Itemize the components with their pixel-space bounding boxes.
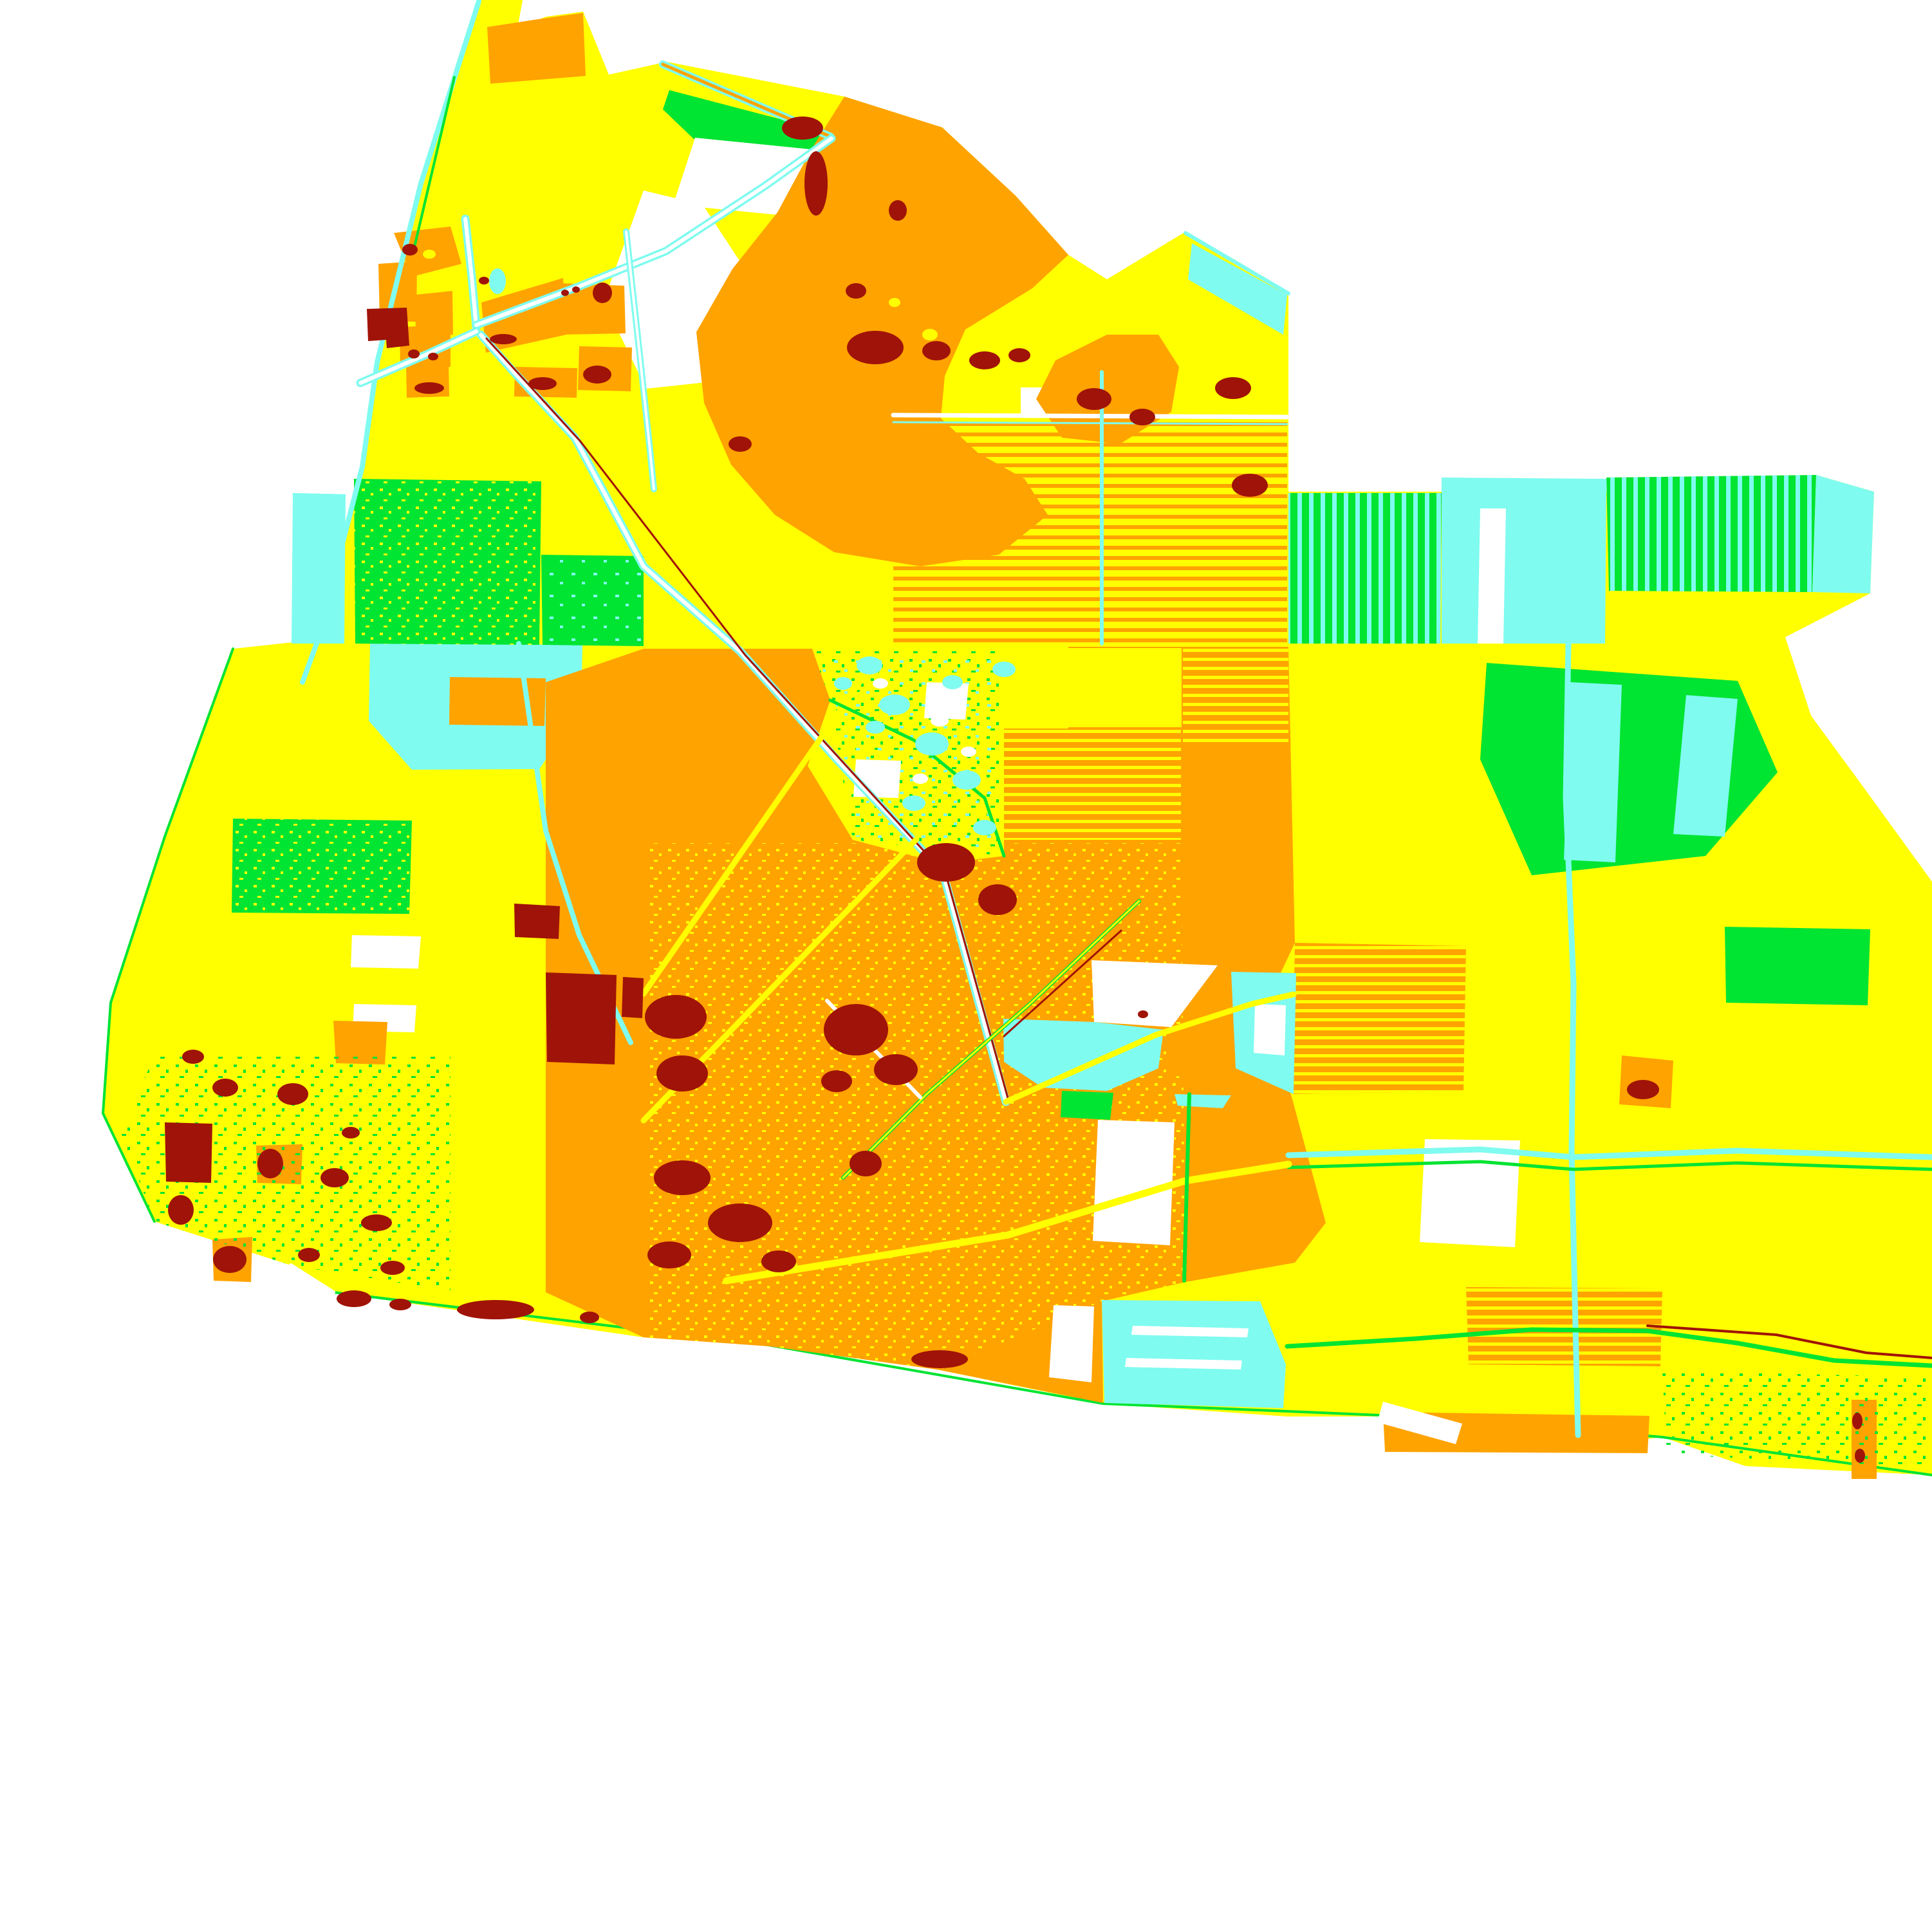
blob [782,116,823,140]
region [1812,475,1874,593]
road [893,415,1287,417]
blob [380,1261,405,1275]
blob [212,1079,238,1097]
blob [168,1195,194,1225]
blob [873,678,888,689]
blob [337,1290,371,1307]
blob [645,995,707,1039]
region [514,904,560,939]
blob [708,1203,772,1242]
region [1478,508,1506,644]
blob [879,694,910,715]
blob [277,1083,308,1105]
blob [834,677,852,690]
blob [847,331,904,364]
blob [729,436,752,452]
blob [320,1168,349,1187]
texture-overlay [893,418,1287,644]
blob [389,1299,411,1310]
texture-overlay [1288,493,1442,644]
blob [298,1248,320,1262]
region [1102,1300,1286,1408]
blob [931,715,949,727]
blob [423,250,436,259]
blob [857,656,882,674]
blob [593,283,612,303]
blob [1215,377,1251,399]
blob [1627,1080,1659,1099]
texture-overlay [232,819,412,914]
texture-overlay [541,555,644,646]
blob [866,721,885,734]
blob [572,286,580,293]
blob [656,1055,708,1091]
classification-map [0,0,1932,1932]
blob [889,200,907,221]
texture-overlay [1466,1287,1662,1366]
blob [978,884,1017,915]
blob [804,151,828,216]
region [1068,648,1182,727]
blob [342,1127,360,1138]
region [367,308,409,348]
blob [915,732,949,756]
page [0,0,1932,1932]
blob [490,334,517,344]
blob [489,268,506,294]
map-frame [0,0,1932,1932]
region [546,972,617,1064]
blob [850,1151,882,1176]
blob [1852,1413,1862,1429]
blob [761,1250,796,1272]
blob [654,1160,711,1195]
blob [1008,348,1030,362]
blob [874,1054,918,1085]
blob [213,1246,246,1273]
blob [942,675,963,689]
blob [583,366,611,384]
texture-overlay [1662,1371,1932,1467]
blob [1232,474,1268,497]
blob [913,774,928,784]
blob [1129,409,1155,425]
blob [402,244,418,255]
region [1288,360,1375,492]
region [1420,1139,1520,1247]
blob [969,351,1000,369]
blob [257,1149,283,1178]
blob [428,353,438,360]
blob [973,820,996,835]
blob [824,1004,888,1055]
region [1442,478,1606,644]
blob [647,1241,691,1268]
blob [528,377,557,390]
blob [1077,388,1111,410]
texture-overlay [1292,943,1466,1094]
region [1564,682,1622,862]
texture-overlay [354,479,541,645]
blob [408,349,420,358]
blob [917,843,975,882]
region [1061,1091,1113,1120]
blob [889,298,900,307]
region [165,1122,212,1183]
blob [902,795,925,811]
blob [414,382,444,394]
region [1093,1120,1175,1245]
blob [846,283,866,299]
texture-overlay [1183,647,1288,748]
map-layers [103,0,1932,1479]
blob [361,1214,392,1231]
blob [922,341,951,360]
blob [182,1050,204,1064]
region [1254,1004,1286,1055]
region [1049,1305,1094,1382]
texture-overlay [1606,475,1816,592]
blob [922,329,938,340]
blob [992,662,1016,677]
blob [561,290,569,296]
blob [911,1350,968,1368]
blob [821,1070,852,1092]
blob [457,1300,534,1319]
blob [952,770,981,790]
blob [1138,1010,1148,1018]
region [1725,927,1870,1005]
blob [580,1312,599,1323]
blob [1855,1449,1865,1463]
texture-overlay [1004,729,1181,840]
region [622,977,644,1018]
blob [961,747,976,757]
blob [479,277,489,284]
region [351,935,421,969]
